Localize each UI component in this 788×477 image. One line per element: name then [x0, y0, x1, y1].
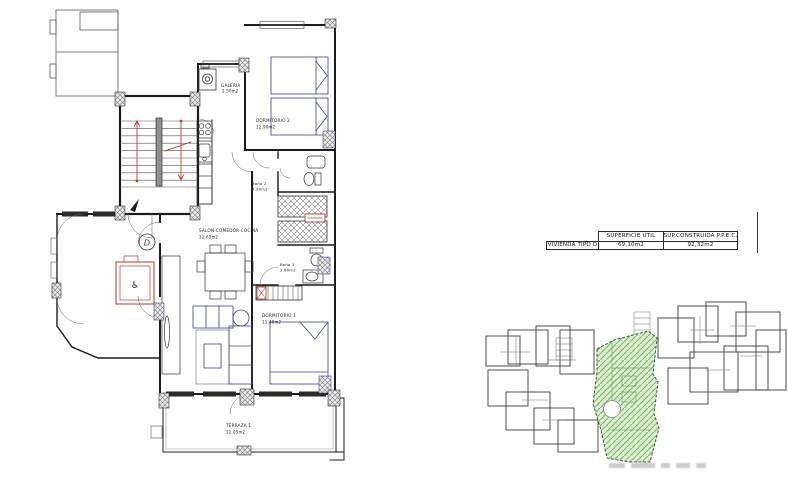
- room-label-dormitorio1: DORMITORIO 1: [262, 313, 296, 318]
- kitchen-fixtures: [197, 120, 212, 204]
- bath2-fixtures: [304, 156, 325, 186]
- room-area-bano2: 3.90m2: [252, 187, 268, 192]
- room-area-dormitorio1: 11.40m2: [262, 320, 282, 325]
- illegible-caption: [609, 463, 706, 468]
- summary-value-construida: 92,32m2: [663, 241, 738, 250]
- double-bed: [270, 322, 328, 384]
- dormitorio2-room: [245, 22, 335, 169]
- room-label-bano1: Baño 1: [280, 262, 295, 267]
- wardrobes: [278, 196, 327, 242]
- room-area-salon: 32.65m2: [199, 235, 219, 240]
- left-terrace: ♿ D: [51, 214, 160, 358]
- sofa-set: [193, 306, 252, 384]
- living-door-arcs: [138, 152, 252, 414]
- keyplan-core-circle: [604, 401, 621, 418]
- sheet-edge-tick: [757, 212, 758, 253]
- staircase: [120, 96, 198, 214]
- tv-cabinet: [162, 256, 180, 374]
- dormitorio1-room: [256, 286, 328, 384]
- unit-letter-marker: D: [139, 234, 155, 250]
- apartment-floorplan: ♿ D: [50, 10, 344, 460]
- room-label-dormitorio2: DORMITORIO 2: [256, 118, 290, 123]
- room-label-galeria: GALERIA: [221, 83, 241, 88]
- washing-machine: [199, 64, 216, 90]
- radiator-closet: [256, 286, 302, 300]
- summary-row-label: VIVIENDA TIPO D: [546, 241, 599, 250]
- living-furniture: [162, 245, 253, 384]
- room-area-galeria: 2.50m2: [222, 89, 239, 94]
- communal-lobby: [50, 10, 118, 96]
- site-keyplan: [486, 302, 786, 462]
- twin-beds: [271, 57, 328, 135]
- room-label-bano2: Baño 2: [252, 181, 267, 186]
- highlighted-unit: [593, 331, 659, 462]
- galeria-room: [198, 61, 245, 134]
- summary-value-util: 69,10m2: [598, 241, 664, 250]
- dining-table: [197, 245, 253, 299]
- room-label-terraza: TERRAZA 1: [225, 423, 251, 428]
- svg-text:D: D: [144, 239, 150, 248]
- wheelchair-icon: ♿: [131, 281, 139, 291]
- room-area-bano1: 3.60m2: [280, 268, 296, 273]
- room-labels: GALERIA 2.50m2 DORMITORIO 2 12.90m2 Baño…: [199, 83, 296, 435]
- room-label-salon: SALON-COMEDOR-COCINA: [199, 228, 258, 233]
- entrance: [57, 199, 198, 238]
- room-area-terraza: 11.05m2: [226, 430, 246, 435]
- drawing-sheet: ♿ D: [0, 0, 788, 477]
- room-area-dormitorio2: 12.90m2: [256, 125, 276, 130]
- accessible-lift: ♿: [116, 256, 154, 304]
